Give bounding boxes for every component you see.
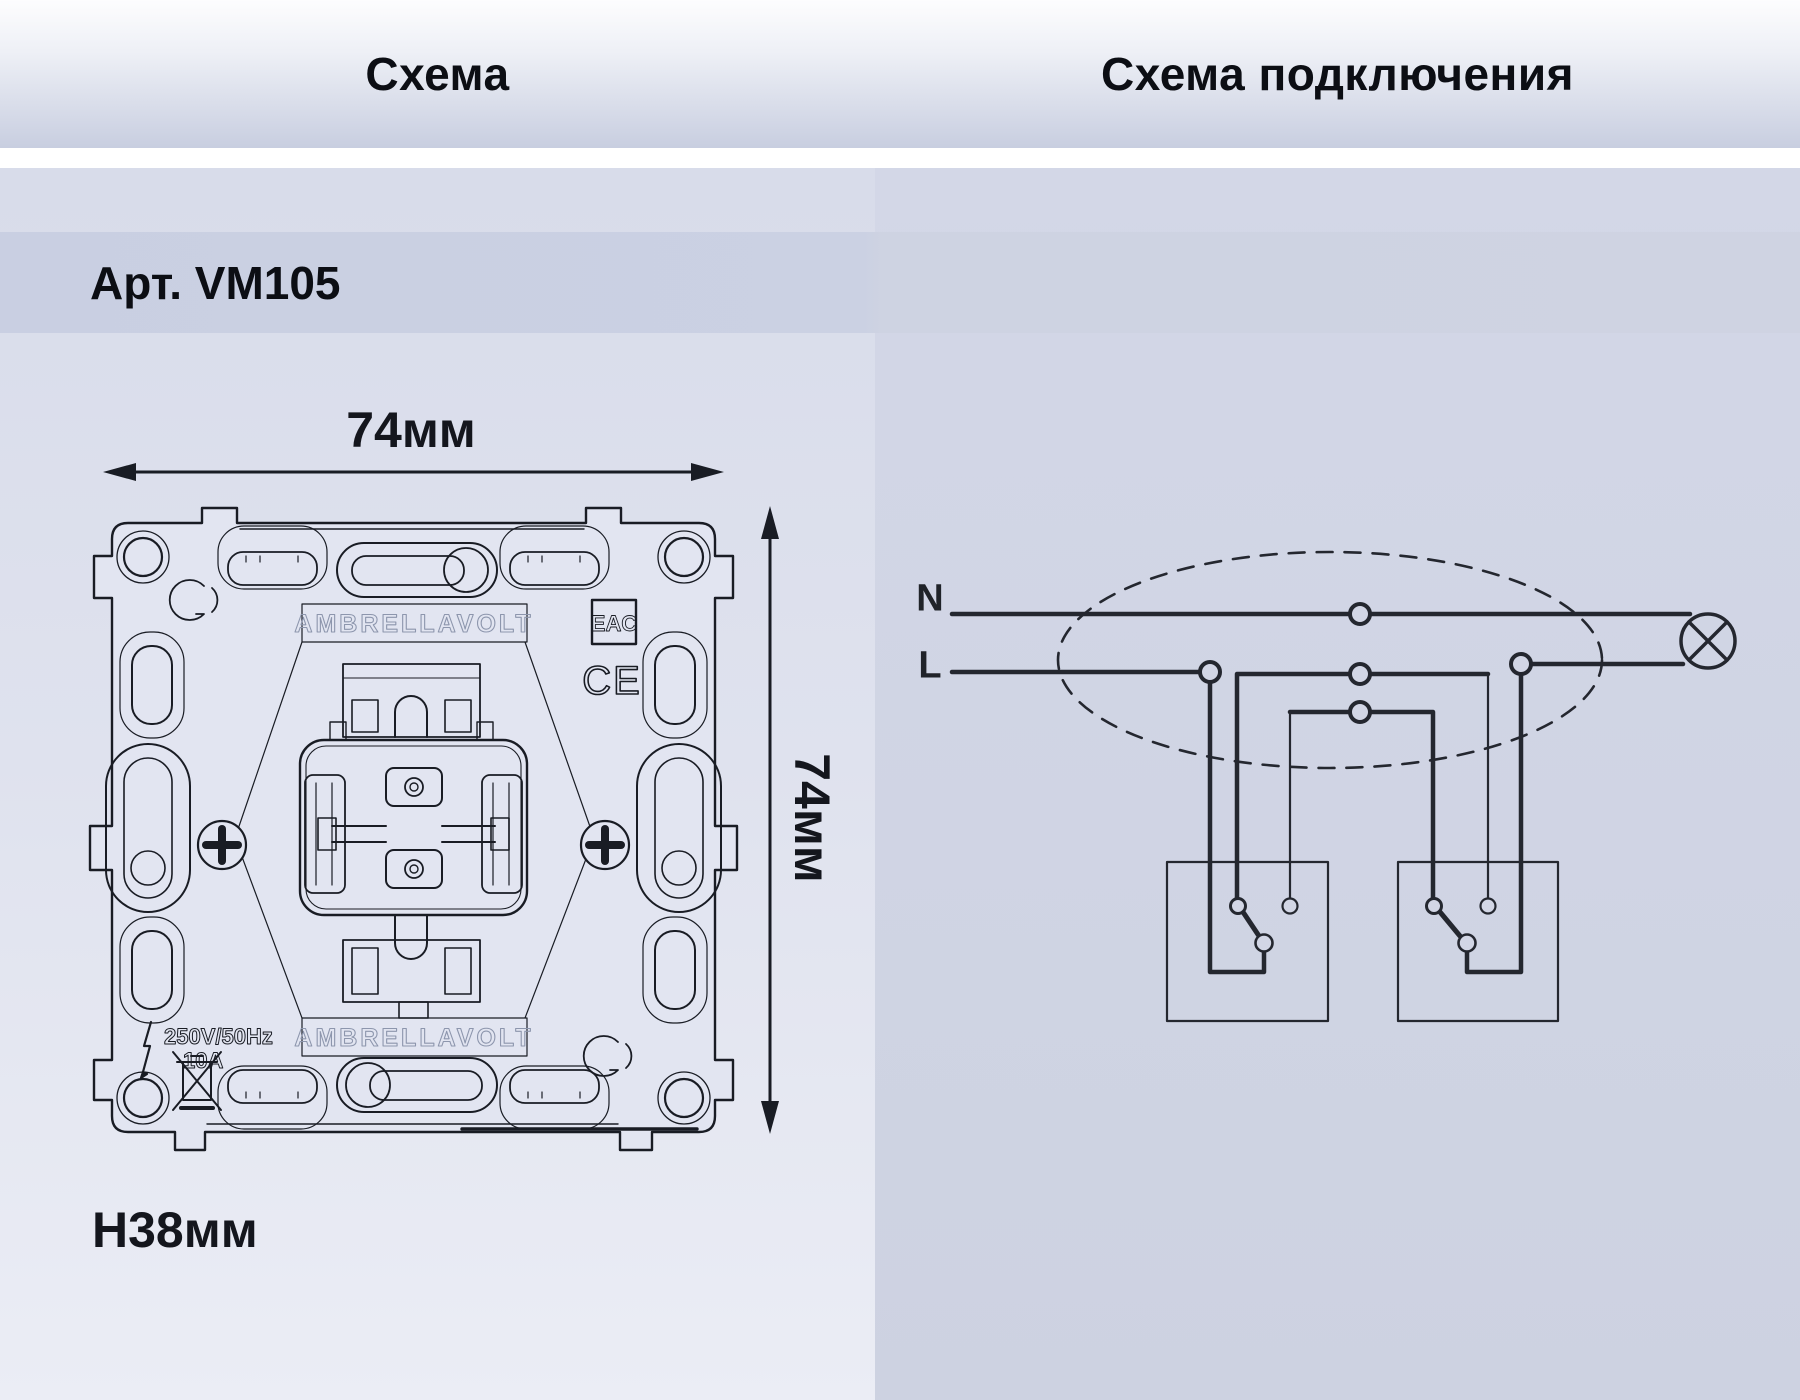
height-dimension-label: 74мм	[783, 753, 841, 883]
switch-left-contacts	[1231, 899, 1298, 952]
switch-right-contacts	[1427, 899, 1496, 952]
rating-current: 10A	[183, 1048, 223, 1073]
header-divider-strip	[0, 148, 1800, 168]
width-dimension-label: 74мм	[346, 401, 476, 459]
brand-text-top: AMBRELLAVOLT	[294, 610, 533, 638]
switch-box-left	[1167, 862, 1328, 1021]
lamp-symbol	[1681, 614, 1735, 668]
switch-box-right	[1398, 862, 1558, 1021]
brand-text-bottom: AMBRELLAVOLT	[294, 1024, 533, 1052]
mechanism-drawing: AMBRELLAVOLT AMBRELLAVOLT	[40, 390, 860, 1300]
neutral-wire-label: N	[916, 578, 943, 621]
wiring-diagram	[875, 400, 1800, 1100]
article-number: Арт. VM105	[90, 256, 341, 310]
svg-text:EAC: EAC	[591, 611, 638, 636]
depth-dimension-label: H38мм	[92, 1201, 258, 1259]
line-wire	[952, 672, 1264, 972]
height-dimension-arrow	[761, 506, 779, 1134]
left-panel-title: Схема	[0, 0, 875, 148]
line-wire-label: L	[918, 645, 941, 688]
right-panel-title: Схема подключения	[875, 0, 1800, 148]
lamp-return-wire	[1467, 664, 1683, 972]
width-dimension-arrow	[103, 463, 724, 481]
ce-mark: CE	[582, 659, 642, 703]
traveler-wire-lower	[1290, 712, 1433, 899]
rating-voltage: 250V/50Hz	[164, 1024, 273, 1049]
junction-nodes	[1200, 604, 1531, 722]
